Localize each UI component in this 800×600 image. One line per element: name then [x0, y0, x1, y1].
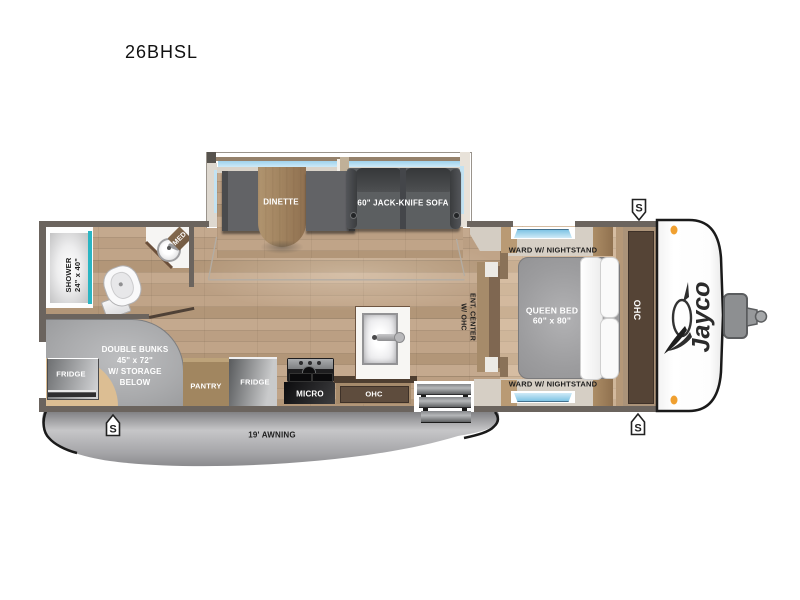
svg-text:S: S	[635, 203, 642, 215]
svg-text:S: S	[109, 424, 116, 436]
svg-text:S: S	[634, 423, 641, 435]
